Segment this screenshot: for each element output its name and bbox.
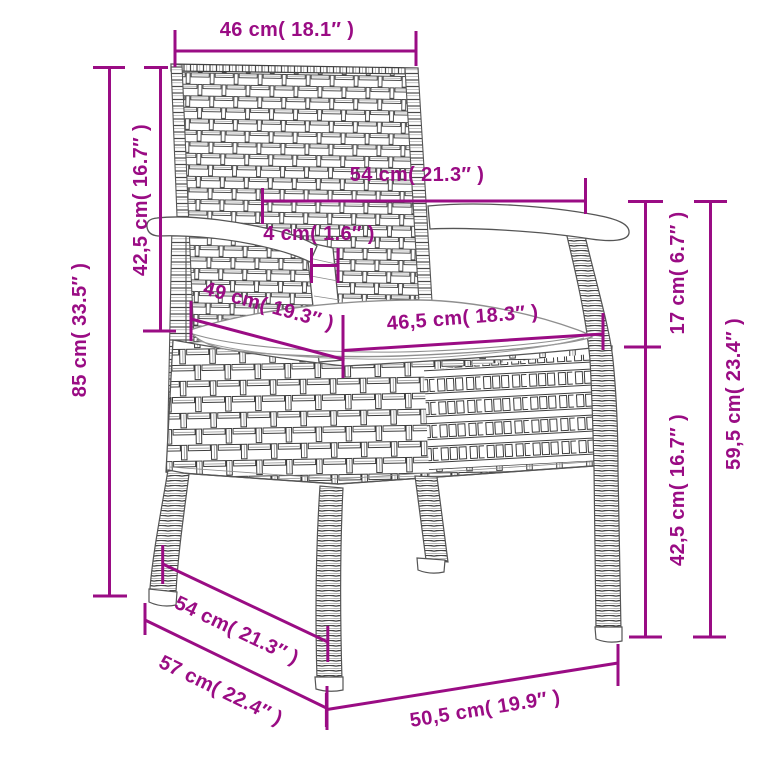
svg-text:46 cm( 18.1″ ): 46 cm( 18.1″ ) [220, 19, 355, 41]
svg-text:85 cm( 33.5″ ): 85 cm( 33.5″ ) [69, 263, 91, 398]
svg-text:54 cm( 21.3″ ): 54 cm( 21.3″ ) [350, 164, 485, 186]
svg-text:42,5 cm( 16.7″ ): 42,5 cm( 16.7″ ) [130, 124, 152, 276]
svg-text:17 cm( 6.7″ ): 17 cm( 6.7″ ) [667, 211, 689, 334]
svg-text:59,5 cm( 23.4″ ): 59,5 cm( 23.4″ ) [723, 318, 745, 470]
svg-text:4 cm( 1.6″ ): 4 cm( 1.6″ ) [263, 223, 375, 245]
svg-text:42,5 cm( 16.7″ ): 42,5 cm( 16.7″ ) [667, 414, 689, 566]
